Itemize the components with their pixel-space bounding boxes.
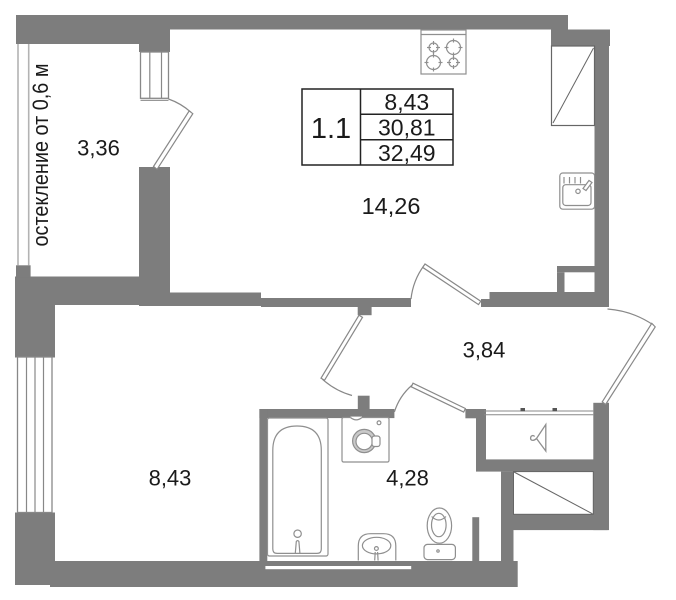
svg-text:4,28: 4,28 [386, 465, 429, 490]
svg-text:30,81: 30,81 [378, 115, 436, 141]
svg-text:1.1: 1.1 [311, 113, 351, 145]
svg-text:3,36: 3,36 [77, 136, 120, 161]
svg-text:8,43: 8,43 [149, 466, 192, 491]
svg-text:14,26: 14,26 [362, 193, 421, 219]
svg-text:3,84: 3,84 [463, 338, 506, 363]
svg-text:остекление от 0,6 м: остекление от 0,6 м [28, 64, 53, 247]
svg-text:32,49: 32,49 [378, 140, 436, 166]
svg-text:8,43: 8,43 [384, 89, 429, 115]
